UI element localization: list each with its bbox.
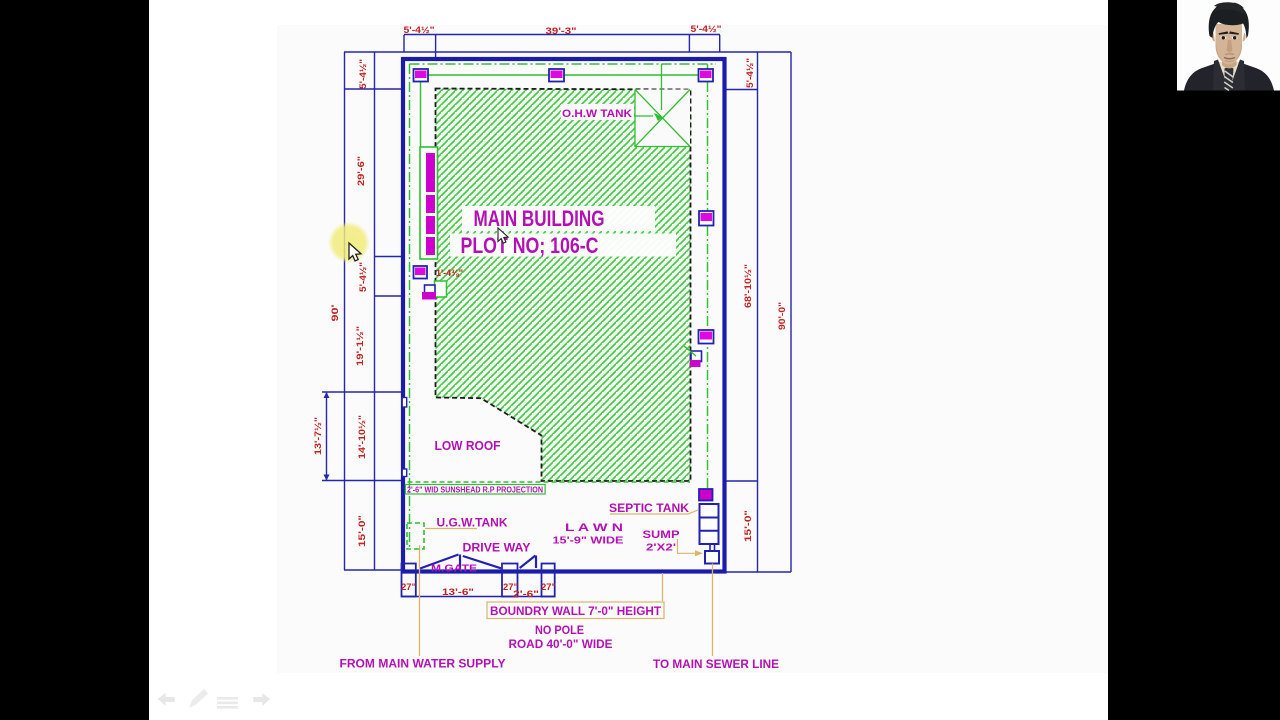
svg-text:2'X2': 2'X2' xyxy=(646,543,676,554)
svg-text:5'-4½": 5'-4½" xyxy=(358,59,368,89)
svg-text:27": 27" xyxy=(541,582,556,593)
svg-text:90'-0": 90'-0" xyxy=(777,302,787,330)
svg-text:NO POLE: NO POLE xyxy=(535,625,584,637)
svg-text:SUMP: SUMP xyxy=(643,529,680,541)
svg-text:14'-10½": 14'-10½" xyxy=(357,415,367,459)
svg-text:LOW ROOF: LOW ROOF xyxy=(435,439,501,453)
svg-text:2'-6" WID SUNSHEAD R.P PROJECT: 2'-6" WID SUNSHEAD R.P PROJECTION xyxy=(407,486,543,495)
svg-text:5'-4½": 5'-4½" xyxy=(404,25,435,35)
svg-text:5'-4½": 5'-4½" xyxy=(691,24,722,34)
svg-text:13'-7½": 13'-7½" xyxy=(313,417,323,455)
svg-text:27": 27" xyxy=(401,582,416,593)
svg-text:BOUNDRY WALL 7'-0" HEIGHT: BOUNDRY WALL 7'-0" HEIGHT xyxy=(490,606,661,618)
svg-text:15'-9" WIDE: 15'-9" WIDE xyxy=(553,536,624,547)
svg-text:29'-6": 29'-6" xyxy=(356,156,366,186)
svg-text:MAIN BUILDING: MAIN BUILDING xyxy=(474,206,605,231)
svg-text:1'-4⅜": 1'-4⅜" xyxy=(436,268,463,278)
svg-text:39'-3": 39'-3" xyxy=(546,26,577,36)
svg-text:2'-6": 2'-6" xyxy=(513,589,539,600)
svg-text:13'-6": 13'-6" xyxy=(442,587,474,598)
svg-text:U.G.W.TANK: U.G.W.TANK xyxy=(437,518,509,530)
svg-text:SEPTIC TANK: SEPTIC TANK xyxy=(609,503,690,515)
svg-text:15'-0": 15'-0" xyxy=(743,510,753,542)
svg-text:M.GATE: M.GATE xyxy=(431,563,477,575)
svg-text:O.H.W TANK: O.H.W TANK xyxy=(562,108,632,120)
svg-text:PLOT NO; 106-C: PLOT NO; 106-C xyxy=(461,233,599,258)
svg-text:5'-4½": 5'-4½" xyxy=(358,262,368,292)
svg-text:DRIVE WAY: DRIVE WAY xyxy=(463,541,531,555)
svg-text:19'-1½": 19'-1½" xyxy=(355,326,365,366)
svg-text:68'-10½": 68'-10½" xyxy=(743,264,753,308)
svg-text:L A W N: L A W N xyxy=(565,522,623,534)
svg-text:15'-0": 15'-0" xyxy=(357,515,367,547)
svg-text:90': 90' xyxy=(330,305,340,322)
svg-text:FROM MAIN WATER SUPPLY: FROM MAIN WATER SUPPLY xyxy=(340,659,506,671)
svg-text:ROAD 40'-0" WIDE: ROAD 40'-0" WIDE xyxy=(509,639,613,651)
svg-text:5'-4½": 5'-4½" xyxy=(745,58,755,88)
svg-text:TO MAIN SEWER LINE: TO MAIN SEWER LINE xyxy=(653,659,779,671)
